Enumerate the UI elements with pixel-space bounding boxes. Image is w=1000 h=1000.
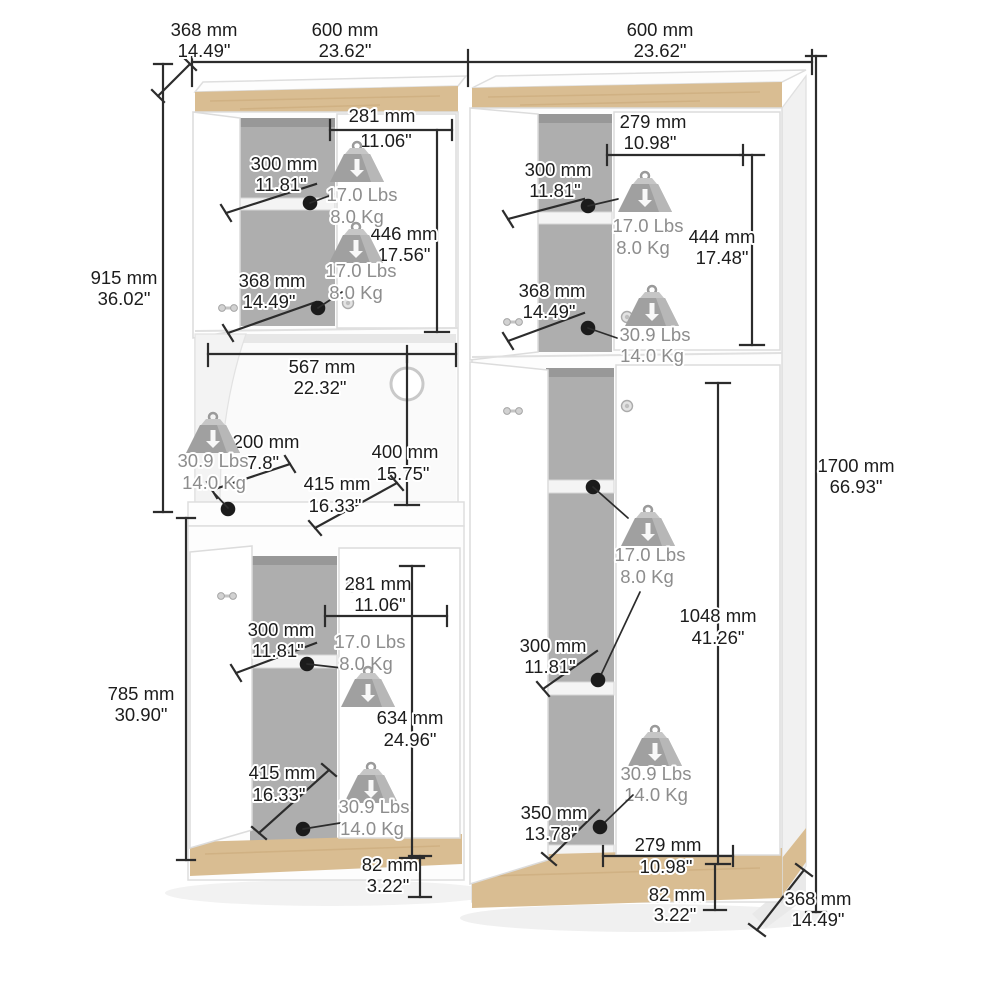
interior-shade (546, 368, 614, 377)
capacity-tr-lower: 30.9 Lbs14.0 Kg (620, 324, 691, 366)
left-top-open-door (193, 112, 240, 338)
dim-1700-line (806, 56, 826, 912)
right-tall-cabinet-interior (546, 368, 614, 860)
leader-dot (221, 502, 236, 517)
right-tall-cabinet-shelf-1 (546, 480, 614, 493)
dim-tr-shelf-width: 368 mm14.49" (519, 280, 586, 322)
dim-left-width: 600 mm23.62" (312, 19, 379, 61)
dim-total-height: 1700 mm66.93" (817, 455, 894, 497)
dim-bl-shelf-diag: 415 mm16.33" (249, 762, 316, 805)
diagram-canvas: 368 mm14.49" 600 mm23.62" 600 mm23.62" 9… (0, 0, 1000, 1000)
left-bottom-open-door (190, 546, 252, 848)
dim-upper-left-height: 915 mm36.02" (91, 267, 158, 309)
left-unit-floor-shadow (165, 880, 495, 906)
dim-hutch-shelf-diag: 415 mm16.33" (304, 473, 371, 516)
right-unit-side-panel (782, 76, 806, 902)
dim-base-depth: 368 mm14.49" (785, 888, 852, 930)
hutch-top-underside (240, 334, 456, 343)
dim-hutch-width: 567 mm22.32" (289, 356, 356, 398)
right-top-cabinet-shelf (536, 212, 612, 224)
capacity-hutch: 30.9 Lbs14.0 Kg (178, 450, 249, 493)
dim-tr-inner-height: 444 mm17.48" (689, 226, 756, 268)
dim-lower-left-height: 785 mm30.90" (108, 683, 175, 725)
dim-tr-inner-width: 279 mm10.98" (620, 111, 687, 153)
dim-top-depth: 368 mm14.49" (171, 19, 238, 61)
interior-shade (536, 114, 612, 123)
door-knob (622, 401, 633, 412)
capacity-bl-lower: 30.9 Lbs14.0 Kg (339, 796, 410, 839)
dim-right-width: 600 mm23.62" (627, 19, 694, 61)
capacity-br-lower: 30.9 Lbs14.0 Kg (621, 763, 692, 805)
dim-tl-shelf-width: 368 mm14.49" (239, 270, 306, 312)
left-bottom-cabinet (188, 526, 464, 880)
dim-br-inner-width: 279 mm10.98" (635, 834, 702, 877)
leader-dot (591, 673, 606, 688)
interior-shade (238, 118, 335, 127)
dim-bl-inner-width: 281 mm11.06" (345, 573, 412, 615)
dim-hutch-height: 400 mm15.75" (372, 441, 439, 484)
dim-bl-inner-height: 634 mm24.96" (377, 707, 444, 750)
dim-915-line (154, 64, 172, 512)
interior-shade (250, 556, 337, 565)
leader-dot (593, 820, 608, 835)
cabinet-dimension-diagram: 368 mm14.49" 600 mm23.62" 600 mm23.62" 9… (0, 0, 1000, 1000)
dim-br-bottom-gap: 350 mm13.78" (521, 802, 588, 844)
